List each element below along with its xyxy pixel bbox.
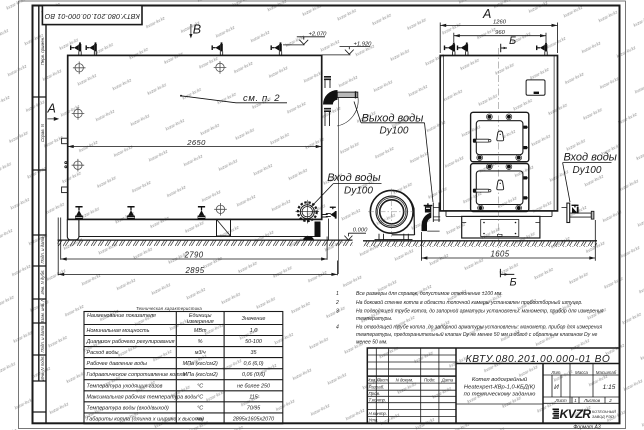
svg-text:КВТУ.080.201.00.000-01 ВО: КВТУ.080.201.00.000-01 ВО [44,12,140,21]
svg-text:Наименование показателя: Наименование показателя [87,313,156,319]
svg-text:N докум.: N докум. [396,377,414,382]
svg-text:Heatexpert-КВр-1,0-КБД(К): Heatexpert-КВр-1,0-КБД(К) [464,385,535,391]
svg-text:А: А [482,7,491,21]
svg-text:Пров.: Пров. [369,391,381,396]
svg-text:В: В [193,23,201,37]
svg-text:мм: мм [196,416,204,422]
svg-text:Температура воды (вход/выход): Температура воды (вход/выход) [87,405,170,411]
svg-text:70/95: 70/95 [247,405,261,411]
svg-text:измерения: измерения [187,319,214,325]
svg-text:Разраб.: Разраб. [369,385,385,390]
svg-text:Формат А3: Формат А3 [573,424,601,430]
svg-text:Температура уходящих газов: Температура уходящих газов [87,383,163,389]
svg-text:Dy100: Dy100 [380,125,409,136]
svg-text:35: 35 [251,350,258,356]
svg-text:°С: °С [197,405,203,411]
svg-text:Б: Б [509,35,516,47]
svg-text:Утв.: Утв. [369,417,379,422]
svg-text:Вход воды: Вход воды [327,172,380,184]
svg-text:Б: Б [510,277,517,289]
svg-text:0,6 (6,0): 0,6 (6,0) [243,361,263,367]
svg-text:МПа (кгс/см2): МПа (кгс/см2) [183,372,218,378]
svg-text:2650: 2650 [186,138,206,147]
svg-text:Габариты котла (длинна х ширин: Габариты котла (длинна х ширина х высота… [87,416,205,422]
svg-text:50-100: 50-100 [245,339,262,345]
svg-text:ЗАВОД РЭП: ЗАВОД РЭП [592,415,614,419]
svg-text:1: 1 [336,291,339,297]
svg-text:На боковой стенке котла в обла: На боковой стенке котла в области топочн… [356,299,583,306]
svg-text:МВт: МВт [194,328,207,334]
svg-text:И: И [554,384,559,391]
svg-text:KVZR: KVZR [560,407,592,421]
svg-text:Расход воды: Расход воды [87,350,119,356]
svg-text:м3/ч: м3/ч [195,350,206,356]
svg-text:не более 250: не более 250 [237,383,270,389]
svg-text:3: 3 [336,309,339,315]
svg-text:Вход воды: Вход воды [564,152,617,164]
svg-text:Листов: Листов [583,398,601,403]
svg-text:температуры, предохранительный: температуры, предохранительный клапан Dy… [356,331,598,338]
svg-text:4: 4 [336,325,339,331]
svg-text:Инв. N подл.: Инв. N подл. [40,355,45,380]
svg-text:Гидравлическое сопротивление к: Гидравлическое сопротивление котла [87,372,186,378]
svg-text:Изм.: Изм. [367,377,376,382]
svg-text:см. п. 2: см. п. 2 [243,93,280,104]
svg-text:%: % [198,339,203,345]
svg-text:Диапазон рабочего регулировани: Диапазон рабочего регулирования [86,339,175,345]
svg-text:Перв. примен.: Перв. примен. [40,37,45,66]
svg-text:Подп. и дата: Подп. и дата [40,236,45,264]
svg-text:2895: 2895 [185,266,205,275]
svg-text:На подводящей трубе котла, д: На подводящей трубе котла, до запорной а… [356,308,604,315]
svg-text:Значение: Значение [242,316,266,322]
svg-text:1605: 1605 [491,250,510,259]
svg-text:Dy100: Dy100 [573,165,602,176]
svg-text:115: 115 [249,394,259,400]
svg-text:2895х1605х2070: 2895х1605х2070 [232,416,274,422]
svg-text:Дата: Дата [441,377,454,382]
svg-text:Лит.: Лит. [550,370,561,375]
svg-text:Справ. N: Справ. N [40,123,45,142]
svg-text:по техническому заданию: по техническому заданию [464,391,536,397]
svg-text:А: А [47,102,56,116]
svg-text:2: 2 [335,300,339,306]
svg-text:Техническая характеристика: Техническая характеристика [136,306,202,311]
svg-text:°С: °С [197,383,203,389]
svg-text:1,0: 1,0 [250,328,258,334]
svg-text:Инв. N дубл.: Инв. N дубл. [40,270,45,295]
svg-text:температуры.: температуры. [356,316,393,322]
svg-text:Dy100: Dy100 [344,185,373,196]
svg-text:КОТЕЛЬНЫЙ: КОТЕЛЬНЫЙ [592,410,616,414]
svg-text:2: 2 [608,398,612,403]
svg-text:1260: 1260 [493,20,507,26]
svg-text:МПа (кгс/см2): МПа (кгс/см2) [183,361,218,367]
svg-text:°С: °С [197,394,203,400]
svg-text:1:15: 1:15 [603,384,616,391]
svg-text:Лист: Лист [554,398,567,403]
svg-text:0,06 (0,6): 0,06 (0,6) [242,372,265,378]
svg-text:Все размеры для справок, допус: Все размеры для справок, допустимое откл… [356,291,503,297]
svg-text:Котел водогрейный: Котел водогрейный [472,376,528,383]
svg-text:Подп. и дата: Подп. и дата [40,325,45,353]
svg-text:менее 50 мм.: менее 50 мм. [356,340,388,346]
svg-text:Максимальная рабочая температу: Максимальная рабочая температура воды [87,394,198,400]
svg-text:Номинальная мощность: Номинальная мощность [87,328,150,334]
svg-text:Т.контр.: Т.контр. [369,398,387,403]
svg-text:Масштаб: Масштаб [596,370,617,375]
svg-text:Лист: Лист [376,377,389,382]
svg-text:Н.контр.: Н.контр. [369,411,388,416]
svg-text:На отводящей трубе котла ,до з: На отводящей трубе котла ,до запорной ар… [356,324,602,331]
svg-text:Подп.: Подп. [424,377,436,382]
svg-text:0.000: 0.000 [353,228,368,234]
svg-text:960: 960 [495,30,505,36]
svg-text:КВТУ.080.201.00.000-01 ВО: КВТУ.080.201.00.000-01 ВО [466,354,611,365]
svg-text:Взам. инв. N: Взам. инв. N [40,298,45,324]
svg-text:Масса: Масса [575,370,589,375]
svg-text:Рабочее давление воды: Рабочее давление воды [87,361,147,367]
svg-text:2790: 2790 [184,251,204,260]
